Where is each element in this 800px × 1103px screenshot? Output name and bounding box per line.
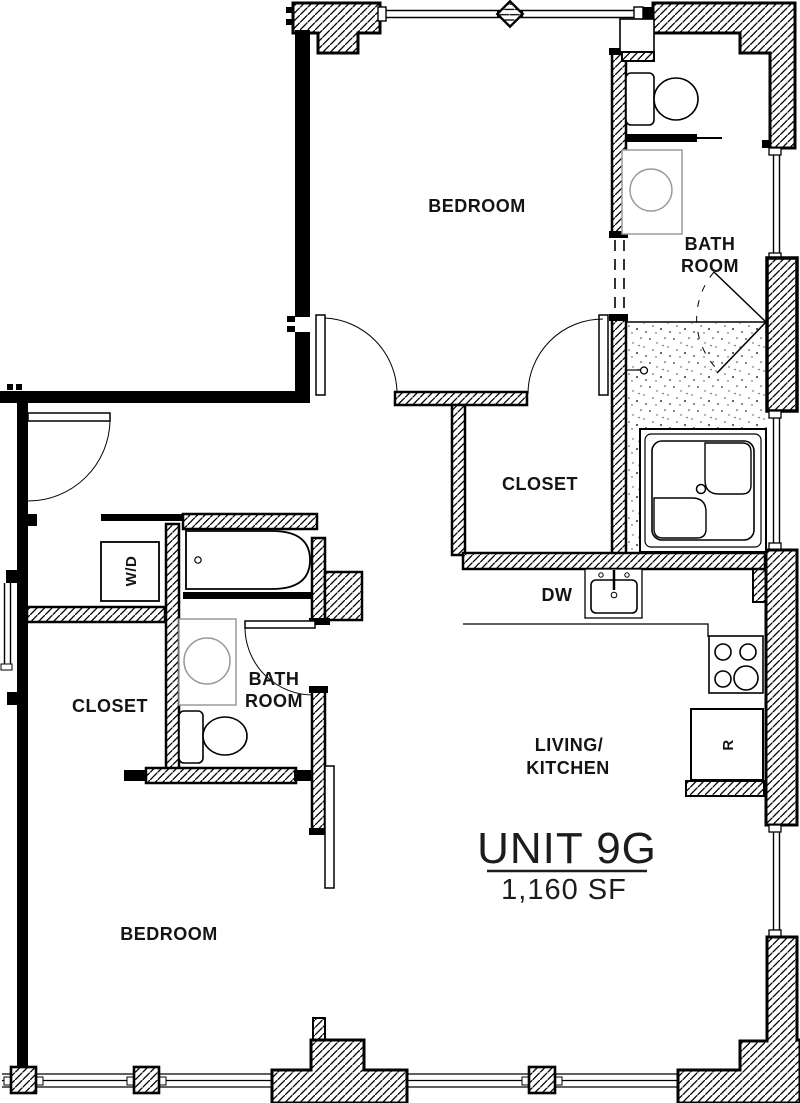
kitchen-north-wall <box>463 553 765 569</box>
bedroom-west-wall <box>295 30 310 317</box>
washer-dryer: W/D <box>101 542 159 601</box>
bath-left-west-wall <box>166 524 179 770</box>
right-pier-1 <box>767 258 797 411</box>
wall-cap <box>294 770 313 781</box>
window-end-nub <box>6 570 18 583</box>
refrigerator-wall-stub <box>686 781 764 796</box>
wall-jog <box>25 514 37 526</box>
wall-cap <box>609 314 628 321</box>
door-leaf <box>245 621 315 628</box>
toilet <box>626 73 698 125</box>
vanity-sink <box>179 619 236 705</box>
sink-basin <box>630 169 672 211</box>
washer-dryer-label: W/D <box>123 556 140 587</box>
door-swing-arc <box>325 318 397 392</box>
door-leaf <box>316 315 325 395</box>
wd-closet-top-wall <box>101 514 183 521</box>
stove <box>709 636 763 693</box>
corridor-wall-horizontal <box>0 391 310 403</box>
closet-top-label: CLOSET <box>502 474 578 494</box>
shower-seat <box>654 498 706 538</box>
faucet-drain <box>611 592 617 598</box>
closet-left-label: CLOSET <box>72 696 148 716</box>
wall-tick <box>7 384 13 390</box>
bath-top-wall-stub <box>622 52 654 61</box>
bedroom-top-label: BEDROOM <box>428 196 526 216</box>
door-leaf-line <box>714 272 766 322</box>
window-end-cap <box>769 825 781 832</box>
bottom-center-pier <box>272 1040 407 1103</box>
bathroom-left-fixtures: W/D <box>101 531 311 763</box>
kitchen-fixtures: R <box>463 569 764 796</box>
right-wall-mid <box>766 550 797 825</box>
wall-nub <box>762 140 770 148</box>
bathtub <box>183 531 311 599</box>
burner <box>715 644 731 660</box>
dishwasher-label: DW <box>542 585 573 605</box>
counter-edge <box>463 624 708 637</box>
window-end-cap <box>769 148 781 155</box>
unit-title: UNIT 9G <box>477 824 657 873</box>
tub-outline <box>186 531 310 589</box>
bath-top-west-wall-lower <box>612 318 626 555</box>
bath-left-east-wall-upper <box>312 538 325 622</box>
tub-apron-wall <box>183 592 311 599</box>
sink-basin <box>184 638 230 684</box>
unit-area: 1,160 SF <box>501 874 627 906</box>
window-mullion-pier <box>529 1067 555 1093</box>
bedroom-west-wall-lower <box>295 332 310 392</box>
window-end-cap <box>378 7 386 21</box>
floor-plan-drawing: W/D R BEDROOM BATH ROOM CLO <box>0 0 800 1103</box>
right-wall <box>678 148 800 1103</box>
bottom-right-pier <box>678 937 800 1103</box>
floor-plan-page: W/D R BEDROOM BATH ROOM CLO <box>0 0 800 1103</box>
bedroom-bottom-label: BEDROOM <box>120 924 218 944</box>
entry-door <box>28 413 110 501</box>
wall-tick <box>287 326 295 332</box>
door-leaf <box>28 413 110 421</box>
door-leaf <box>325 766 334 888</box>
bath-left-label-line1: BATH <box>249 669 300 689</box>
toilet-bowl <box>654 78 698 120</box>
burner <box>740 644 756 660</box>
wall-cap <box>124 770 146 781</box>
wall-cap <box>309 686 328 693</box>
bath-top-label-line2: ROOM <box>681 256 739 276</box>
tub-north-wall <box>183 514 317 529</box>
wall-tick <box>287 316 295 322</box>
kitchen-sink <box>585 569 642 618</box>
closet-left-north-wall <box>27 607 165 622</box>
wall-tick <box>286 7 293 13</box>
faucet-knob <box>599 573 603 577</box>
door-leaf <box>599 315 608 395</box>
bath-left-east-wall-lower <box>312 690 325 832</box>
bath-top-label-line1: BATH <box>685 234 736 254</box>
door-swing-arc <box>528 319 603 394</box>
closet-top-west-wall <box>452 405 465 555</box>
faucet-knob <box>625 573 629 577</box>
door-swing-arc <box>28 421 110 501</box>
burner-large <box>734 666 758 690</box>
wall-tick <box>16 384 22 390</box>
bottom-center-pier-stem <box>313 1018 325 1042</box>
bath-top-ledge <box>620 19 654 52</box>
unit-west-wall <box>17 403 28 1068</box>
refrigerator: R <box>686 709 764 796</box>
window-end-cap <box>1 664 12 670</box>
shower-seat <box>705 443 751 494</box>
window-mullion-pier <box>11 1067 36 1093</box>
bathroom-top-fixtures <box>622 73 766 552</box>
top-window <box>378 1 653 26</box>
living-label-line1: LIVING/ <box>535 735 604 755</box>
top-right-pier <box>653 3 795 148</box>
bedroom-bottom-door <box>325 766 334 888</box>
shower <box>640 429 766 552</box>
grab-bar <box>627 134 697 142</box>
burner <box>715 671 731 687</box>
living-label-line2: KITCHEN <box>526 758 610 778</box>
wall-nub <box>7 692 19 705</box>
bedroom-top-door-left <box>316 315 397 395</box>
refrigerator-label: R <box>720 739 737 750</box>
toilet <box>179 711 247 763</box>
shower-drain <box>697 485 706 494</box>
toilet-bowl <box>203 717 247 755</box>
window-mullion-diamond <box>497 1 522 26</box>
bath-left-label-line2: ROOM <box>245 691 303 711</box>
plumbing-chase <box>325 572 362 620</box>
toilet-tank <box>626 73 654 125</box>
bottom-window-band <box>2 1018 678 1103</box>
closet-top-north-wall <box>395 392 527 405</box>
tub-faucet <box>195 557 201 563</box>
vanity-sink <box>622 150 682 234</box>
window-mullion-pier <box>134 1067 159 1093</box>
bedroom-top-door-right <box>528 315 608 395</box>
window-end-cap <box>769 411 781 418</box>
door-handle-knob <box>641 367 648 374</box>
wall-tick <box>286 19 293 25</box>
closet-left-south-wall <box>146 768 296 783</box>
toilet-tank <box>179 711 203 763</box>
title-block: UNIT 9G 1,160 SF <box>477 824 657 906</box>
